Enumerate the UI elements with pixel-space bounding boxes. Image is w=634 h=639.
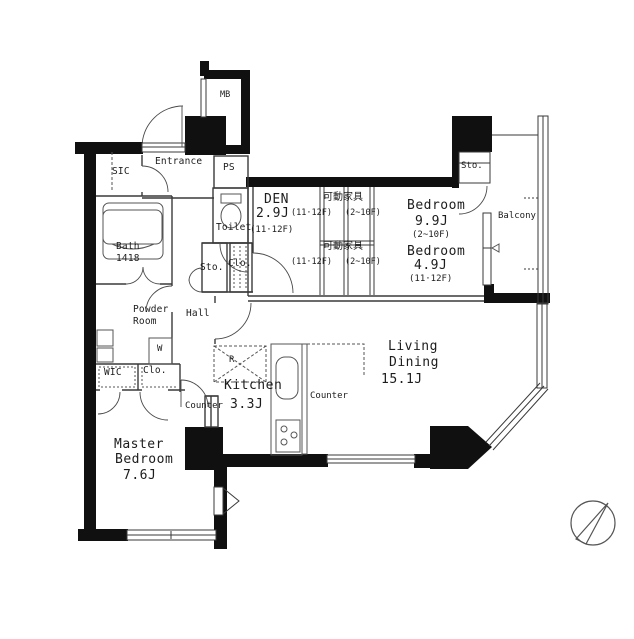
label-bath-size: 1418 xyxy=(116,254,140,264)
label-powder-1: Powder xyxy=(133,305,169,315)
label-bedroom1-size: 9.9J xyxy=(415,215,448,229)
label-furniture1: 可動家具 xyxy=(323,193,363,204)
label-bedroom2-floors: (11·12F) xyxy=(409,275,452,284)
label-ps: PS xyxy=(223,163,235,173)
label-sic: SIC xyxy=(112,167,130,177)
partition-walls xyxy=(96,155,484,427)
label-furniture2-right: (2~10F) xyxy=(345,258,381,267)
label-living-size: 15.1J xyxy=(381,373,423,387)
label-hall-storage: Sto. xyxy=(200,263,224,273)
floor-plan: MB Entrance SIC PS Bath 1418 Toilet Sto.… xyxy=(0,0,634,639)
label-den: DEN xyxy=(264,193,289,207)
label-master-1: Master xyxy=(114,438,164,452)
label-hall-closet: Clo. xyxy=(228,259,252,269)
label-counter-right: Counter xyxy=(310,392,348,401)
label-wic: WIC xyxy=(104,368,122,378)
label-closet2: Clo. xyxy=(143,366,167,376)
compass-icon xyxy=(571,501,615,545)
label-den-size: 2.9J xyxy=(256,207,289,221)
label-bedroom2: Bedroom xyxy=(407,245,465,259)
label-balcony: Balcony xyxy=(498,212,536,221)
floor-plan-drawing xyxy=(0,0,634,639)
label-hall: Hall xyxy=(186,309,210,319)
label-powder-2: Room xyxy=(133,317,157,327)
label-furniture1-right: (2~10F) xyxy=(345,209,381,218)
label-furniture2: 可動家具 xyxy=(323,242,363,253)
label-entrance: Entrance xyxy=(155,157,202,167)
label-meter-box: MB xyxy=(220,91,230,100)
label-den-floors: (11·12F) xyxy=(250,226,293,235)
label-kitchen: Kitchen xyxy=(224,379,282,393)
label-bedroom-storage: Sto. xyxy=(461,162,483,171)
label-washer: W xyxy=(157,345,162,354)
label-master-size: 7.6J xyxy=(123,469,156,483)
label-kitchen-size: 3.3J xyxy=(230,398,263,412)
label-furniture1-left: (11·12F) xyxy=(291,209,332,218)
label-bedroom1-floors: (2~10F) xyxy=(412,231,450,240)
label-bedroom2-size: 4.9J xyxy=(414,259,447,273)
label-toilet: Toilet xyxy=(216,223,252,233)
label-furniture2-left: (11·12F) xyxy=(291,258,332,267)
label-living-1: Living xyxy=(388,340,438,354)
label-counter-left: Counter xyxy=(185,402,223,411)
label-living-2: Dining xyxy=(389,356,439,370)
label-fridge: R xyxy=(229,356,234,365)
label-bedroom1: Bedroom xyxy=(407,199,465,213)
label-master-2: Bedroom xyxy=(115,453,173,467)
label-bath: Bath xyxy=(116,242,140,252)
